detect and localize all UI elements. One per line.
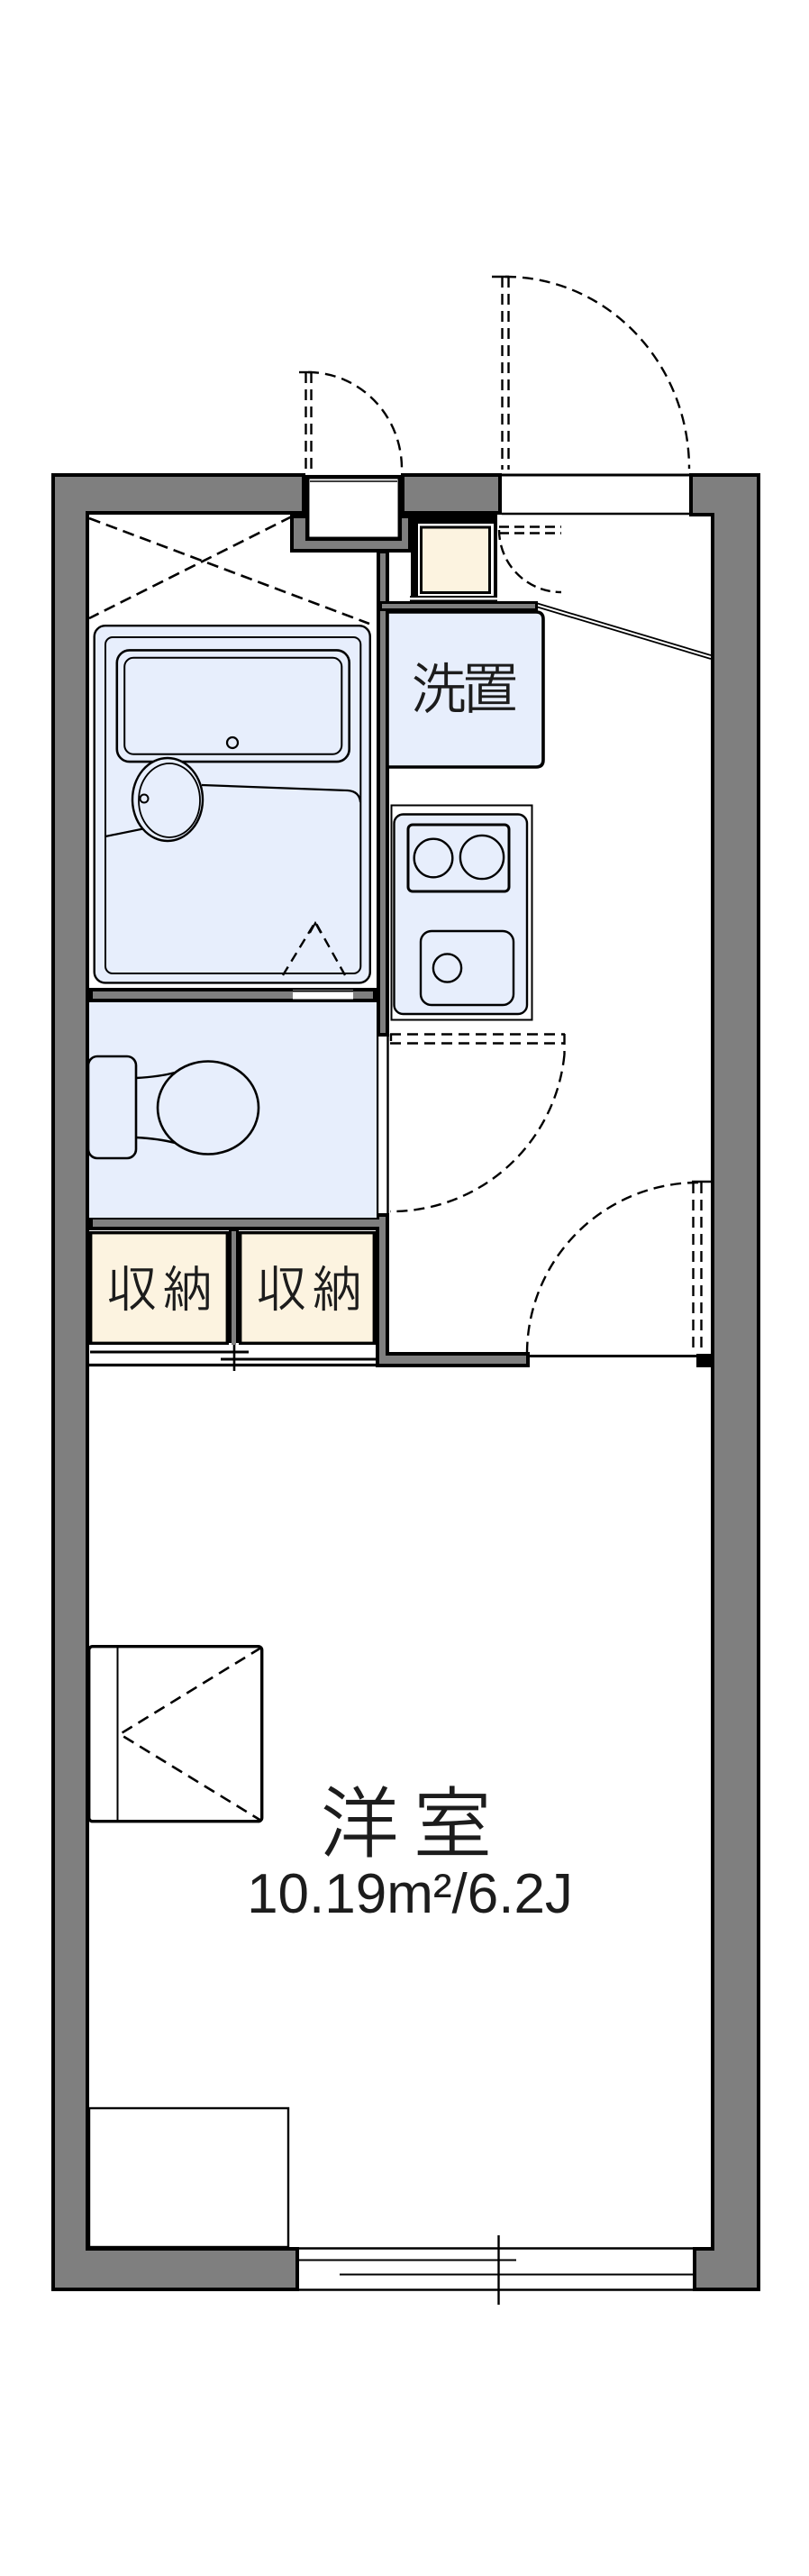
- svg-text:10.19m²/6.2J: 10.19m²/6.2J: [247, 1863, 573, 1925]
